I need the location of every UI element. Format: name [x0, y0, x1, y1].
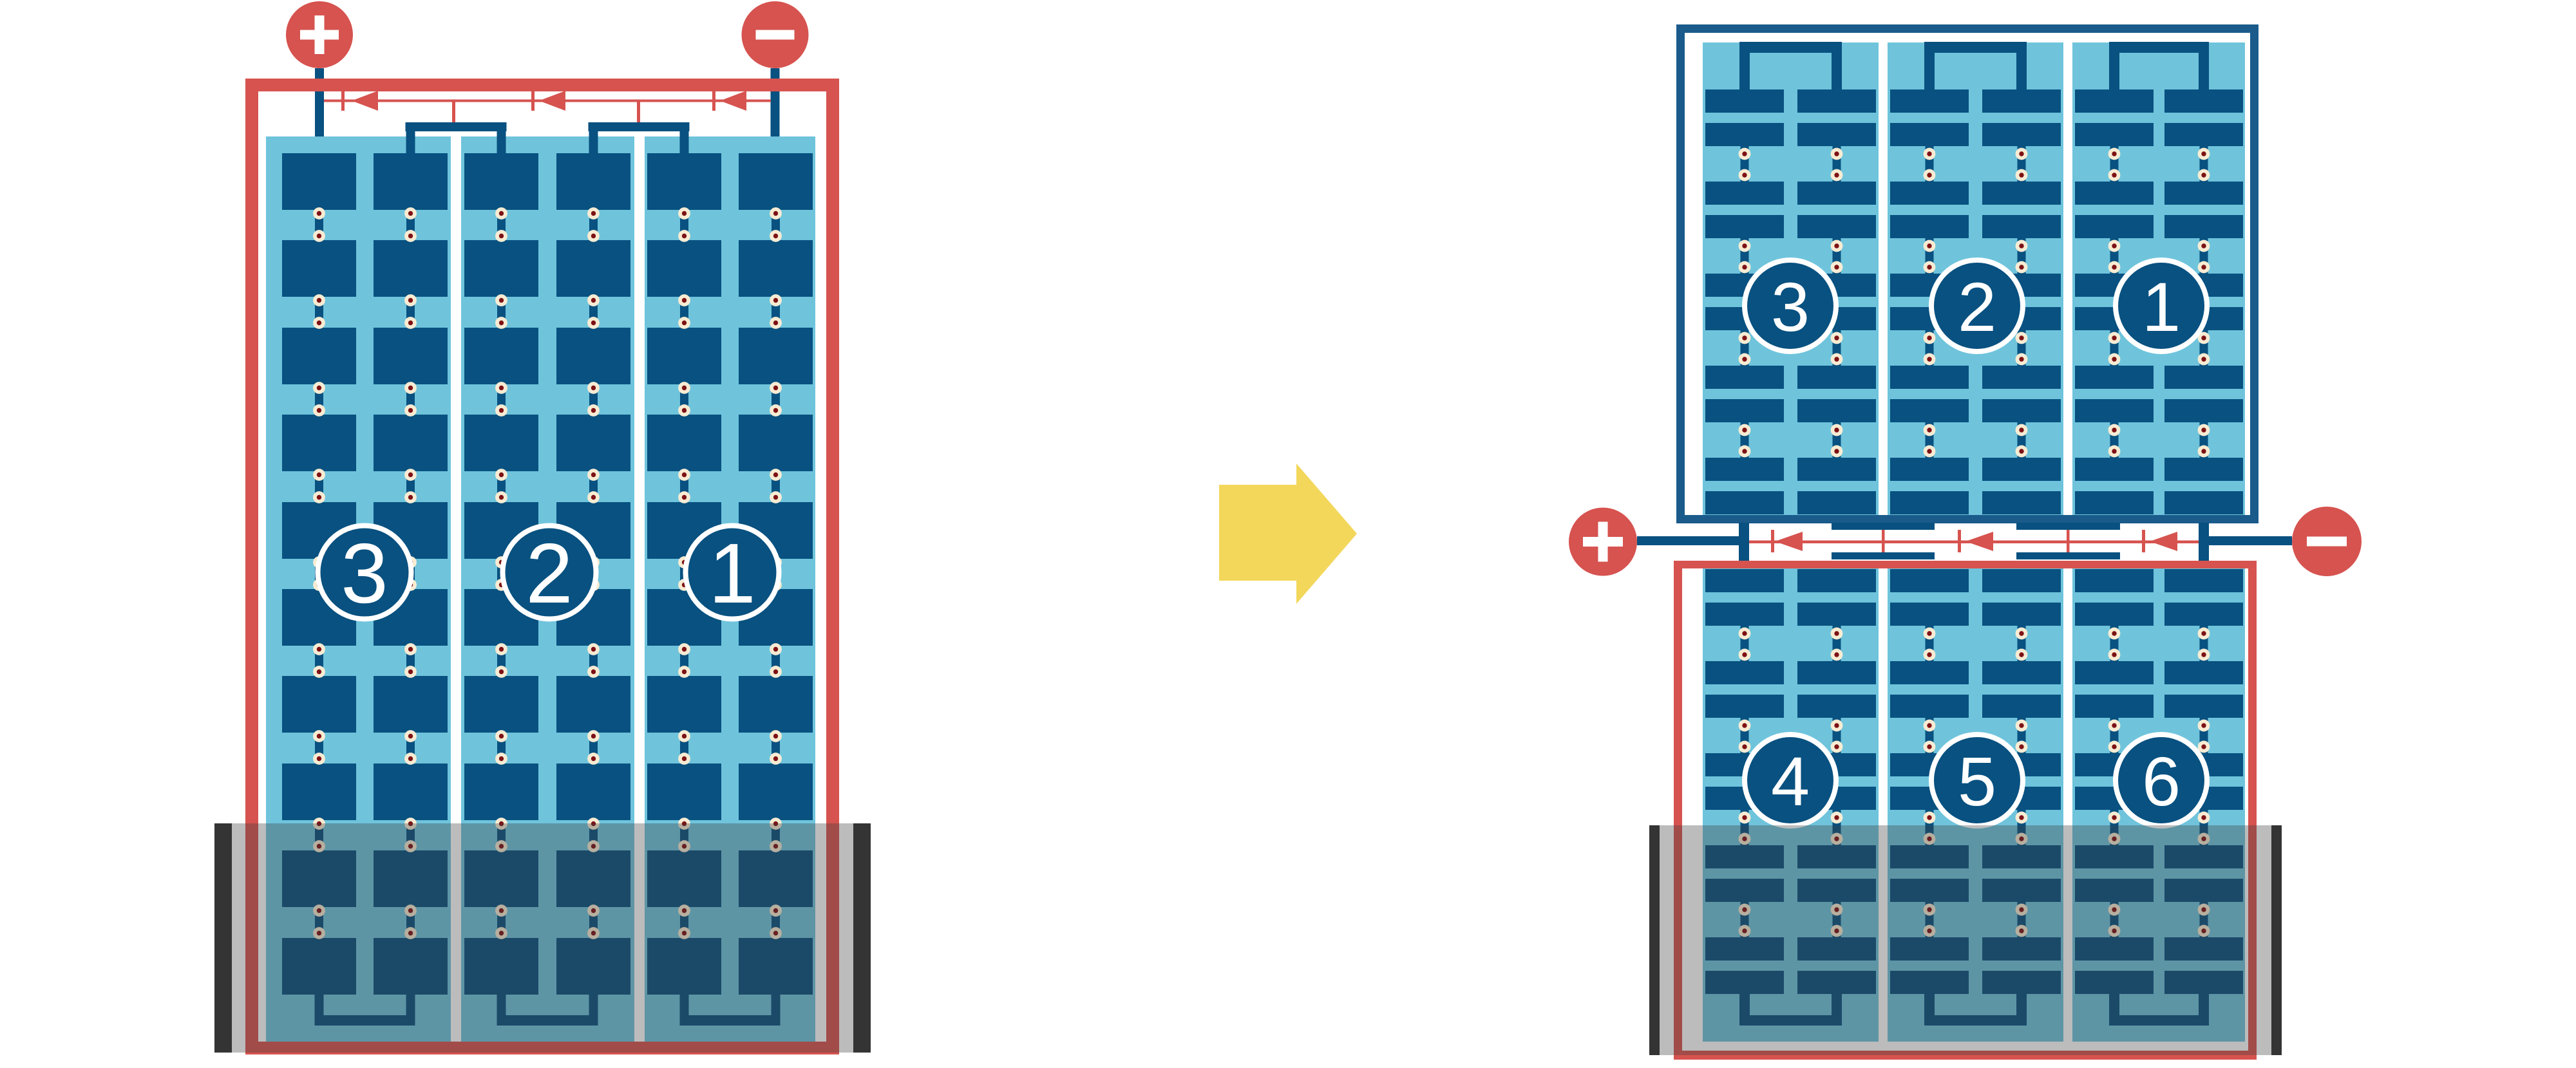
- svg-text:5: 5: [1958, 742, 1996, 820]
- svg-text:2: 2: [526, 526, 573, 621]
- svg-text:3: 3: [341, 526, 388, 621]
- svg-text:2: 2: [1958, 268, 1996, 346]
- svg-text:1: 1: [708, 526, 755, 621]
- svg-text:4: 4: [1771, 742, 1810, 820]
- svg-text:6: 6: [2142, 742, 2181, 820]
- svg-text:3: 3: [1771, 268, 1810, 346]
- svg-text:1: 1: [2142, 268, 2181, 346]
